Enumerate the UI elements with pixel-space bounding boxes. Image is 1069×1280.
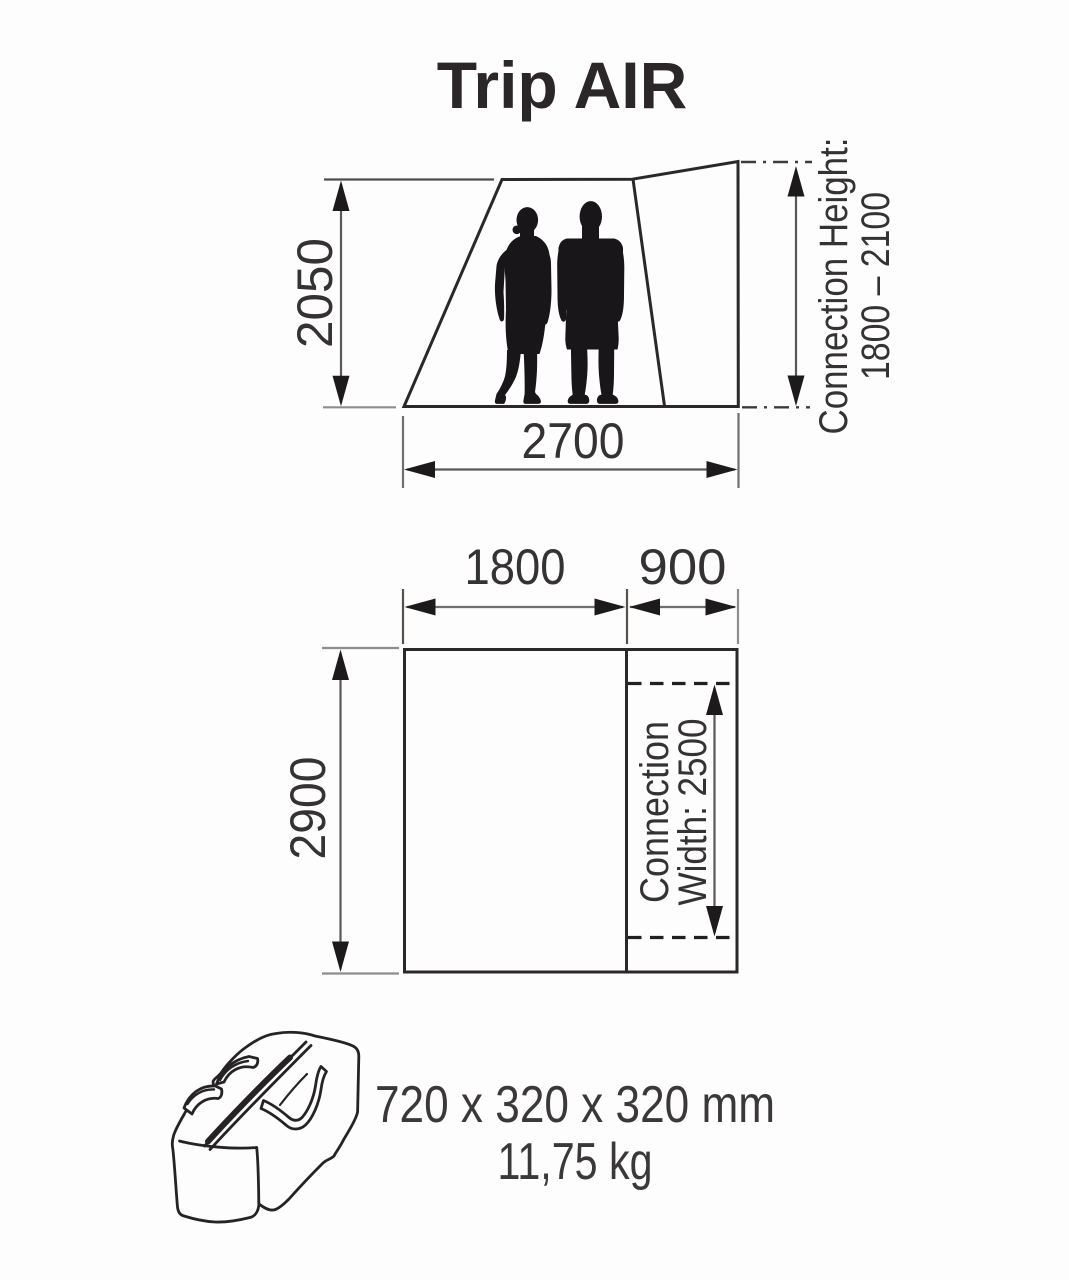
svg-text:1800: 1800: [465, 539, 566, 595]
svg-text:Trip AIR: Trip AIR: [437, 48, 688, 122]
svg-text:Connection Height:: Connection Height:: [812, 138, 856, 435]
svg-text:900: 900: [639, 539, 727, 595]
svg-text:2050: 2050: [287, 238, 343, 348]
svg-text:11,75 kg: 11,75 kg: [498, 1133, 653, 1191]
svg-text:720 x 320 x 320 mm: 720 x 320 x 320 mm: [375, 1076, 775, 1134]
svg-text:2900: 2900: [280, 757, 336, 860]
svg-text:1800 – 2100: 1800 – 2100: [854, 192, 898, 380]
svg-text:2700: 2700: [522, 413, 625, 469]
svg-text:Width: 2500: Width: 2500: [671, 719, 715, 906]
